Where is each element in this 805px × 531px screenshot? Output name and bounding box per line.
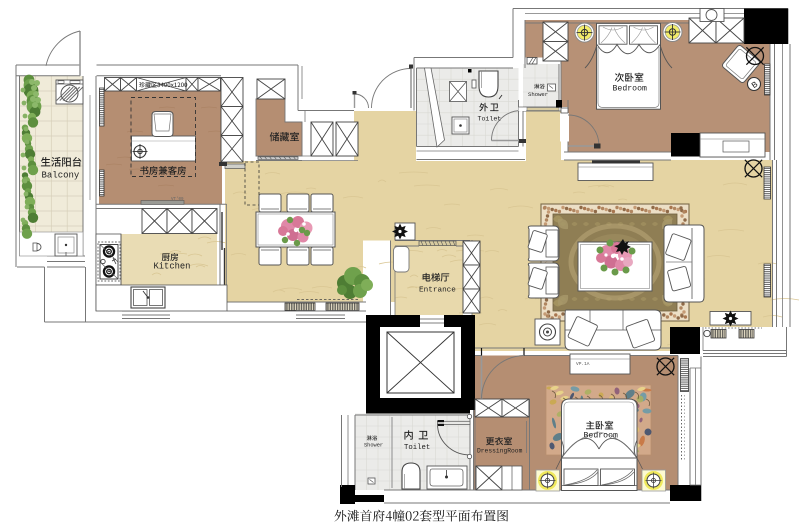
svg-text:Toilet: Toilet: [404, 444, 430, 452]
svg-text:Entrance: Entrance: [419, 287, 456, 295]
svg-text:VT'09: VT'09: [171, 197, 184, 202]
svg-text:Kitchen: Kitchen: [154, 262, 191, 272]
svg-text:Bedroom: Bedroom: [613, 84, 647, 94]
svg-text:Toilet: Toilet: [478, 116, 502, 123]
svg-text:Shower: Shower: [364, 442, 383, 448]
svg-text:Balcony: Balcony: [42, 171, 80, 181]
svg-text:VP.1A: VP.1A: [576, 361, 590, 367]
svg-text:Shower: Shower: [528, 91, 548, 98]
svg-text:Bedroom: Bedroom: [584, 431, 618, 441]
svg-text:DressingRoom: DressingRoom: [477, 448, 523, 455]
